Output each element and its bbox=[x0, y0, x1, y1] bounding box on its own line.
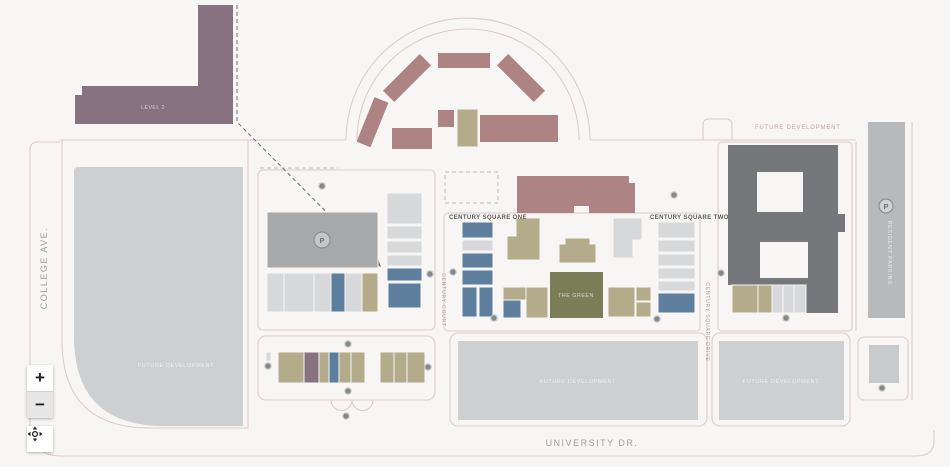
building-unit[interactable] bbox=[462, 287, 477, 317]
zoom-in-button[interactable]: + bbox=[27, 365, 53, 392]
building-unit[interactable] bbox=[394, 352, 407, 383]
map-marker[interactable] bbox=[783, 315, 789, 321]
building-unit[interactable] bbox=[758, 285, 772, 313]
building-residential-wing[interactable] bbox=[838, 214, 845, 232]
map-marker[interactable] bbox=[319, 183, 325, 189]
zoom-out-button[interactable]: − bbox=[27, 392, 53, 418]
mid-west-block bbox=[267, 193, 422, 312]
building-unit[interactable] bbox=[387, 255, 422, 266]
building-unit[interactable] bbox=[388, 283, 421, 308]
small-gray-building[interactable] bbox=[869, 345, 899, 383]
plaza-buildings bbox=[357, 53, 558, 149]
building-unit[interactable] bbox=[732, 285, 758, 313]
building-unit[interactable] bbox=[479, 287, 493, 317]
courtyard bbox=[757, 172, 803, 212]
building-unit[interactable] bbox=[783, 285, 794, 313]
pan-button[interactable] bbox=[27, 426, 53, 452]
building-unit[interactable] bbox=[772, 285, 783, 313]
plaza-unit[interactable] bbox=[457, 109, 478, 147]
road-top-stub bbox=[703, 119, 732, 140]
building-unit[interactable] bbox=[658, 281, 695, 291]
plaza-unit[interactable] bbox=[392, 128, 432, 149]
building-center-anchor[interactable] bbox=[517, 176, 635, 213]
building-unit[interactable] bbox=[503, 300, 521, 318]
future-development-right-label: FUTURE DEVELOPMENT bbox=[743, 379, 819, 385]
building-unit[interactable] bbox=[387, 226, 422, 239]
future-development-left-label: FUTURE DEVELOPMENT bbox=[138, 363, 214, 369]
building-unit[interactable] bbox=[526, 287, 548, 318]
map-marker[interactable] bbox=[450, 269, 456, 275]
building-unit[interactable] bbox=[636, 302, 651, 317]
building-unit[interactable] bbox=[266, 352, 271, 361]
plaza-unit[interactable] bbox=[438, 53, 490, 68]
parking-badge-letter: P bbox=[319, 236, 324, 245]
building-unit[interactable] bbox=[636, 287, 651, 301]
map-marker[interactable] bbox=[718, 270, 724, 276]
building-unit[interactable] bbox=[658, 268, 695, 279]
future-development-block-left bbox=[74, 167, 243, 426]
the-green-label: THE GREEN bbox=[558, 293, 594, 299]
building-unit[interactable] bbox=[351, 352, 365, 383]
road-driveway-bumps bbox=[331, 400, 373, 411]
future-development-top-label: FUTURE DEVELOPMENT bbox=[755, 125, 841, 131]
building-unit[interactable] bbox=[284, 273, 314, 312]
building-unit[interactable] bbox=[387, 241, 422, 253]
building-unit[interactable] bbox=[319, 352, 329, 383]
shops-strip bbox=[266, 352, 425, 383]
century-court-label: CENTURY COURT bbox=[440, 273, 446, 326]
building-unit[interactable] bbox=[608, 287, 635, 317]
building-unit[interactable] bbox=[387, 268, 422, 281]
courtyard bbox=[760, 242, 808, 278]
plaza-unit[interactable] bbox=[438, 110, 454, 127]
building-unit[interactable] bbox=[345, 273, 362, 312]
dashed-future-building bbox=[445, 172, 498, 203]
map-marker[interactable] bbox=[427, 271, 433, 277]
map-marker[interactable] bbox=[345, 388, 351, 394]
building-unit[interactable] bbox=[658, 293, 695, 313]
map-marker[interactable] bbox=[879, 385, 885, 391]
plaza-unit[interactable] bbox=[357, 97, 389, 147]
building-unit[interactable] bbox=[329, 352, 339, 383]
future-development-center-label: FUTURE DEVELOPMENT bbox=[540, 379, 616, 385]
building-unit[interactable] bbox=[794, 285, 806, 313]
site-map: LEVEL 2 FUTURE DEVELOPMENT bbox=[0, 0, 950, 467]
parking-icon: P bbox=[879, 199, 893, 213]
building-unit[interactable] bbox=[462, 222, 493, 238]
building-unit[interactable] bbox=[658, 222, 695, 238]
map-marker[interactable] bbox=[345, 341, 351, 347]
building-unit[interactable] bbox=[462, 240, 493, 251]
college-ave-label: COLLEGE AVE. bbox=[39, 227, 49, 309]
building-unit[interactable] bbox=[314, 273, 331, 312]
building-unit[interactable] bbox=[278, 352, 304, 383]
building-unit[interactable] bbox=[613, 218, 642, 258]
building-unit[interactable] bbox=[507, 218, 540, 260]
building-unit[interactable] bbox=[387, 193, 422, 224]
building-unit[interactable] bbox=[331, 273, 345, 312]
building-unit[interactable] bbox=[658, 240, 695, 252]
building-unit[interactable] bbox=[503, 287, 526, 300]
road-college-ave-corner bbox=[30, 142, 60, 150]
building-unit[interactable] bbox=[380, 352, 394, 383]
university-dr-label: UNIVERSITY DR. bbox=[546, 438, 639, 448]
century-square-one-label: CENTURY SQUARE ONE bbox=[449, 215, 527, 221]
building-unit[interactable] bbox=[362, 273, 378, 312]
parking-badge-letter: P bbox=[883, 202, 888, 211]
building-unit[interactable] bbox=[658, 254, 695, 266]
building-unit[interactable] bbox=[462, 270, 493, 285]
building-unit[interactable] bbox=[304, 352, 319, 383]
map-marker[interactable] bbox=[425, 364, 431, 370]
map-marker[interactable] bbox=[265, 363, 271, 369]
building-unit[interactable] bbox=[462, 253, 493, 268]
century-square-block: THE GREEN bbox=[462, 176, 695, 318]
building-unit[interactable] bbox=[267, 273, 284, 312]
building-unit[interactable] bbox=[407, 352, 425, 383]
map-marker[interactable] bbox=[343, 413, 349, 419]
map-marker[interactable] bbox=[671, 192, 677, 198]
pan-icon bbox=[27, 426, 43, 442]
level2-label: LEVEL 2 bbox=[141, 105, 165, 111]
plaza-unit[interactable] bbox=[480, 115, 558, 142]
building-unit[interactable] bbox=[559, 238, 596, 263]
plaza-unit[interactable] bbox=[497, 54, 545, 102]
century-square-two-label: CENTURY SQUARE TWO bbox=[650, 215, 729, 221]
century-square-drive-label: CENTURY SQUARE DRIVE bbox=[704, 282, 710, 361]
parking-icon: P bbox=[314, 232, 330, 248]
map-marker[interactable] bbox=[654, 316, 660, 322]
site-map-canvas: LEVEL 2 FUTURE DEVELOPMENT bbox=[0, 0, 950, 467]
building-unit[interactable] bbox=[339, 352, 351, 383]
map-marker[interactable] bbox=[491, 315, 497, 321]
resident-parking-label: RESIDENT PARKING bbox=[886, 221, 892, 286]
east-block bbox=[728, 145, 845, 313]
